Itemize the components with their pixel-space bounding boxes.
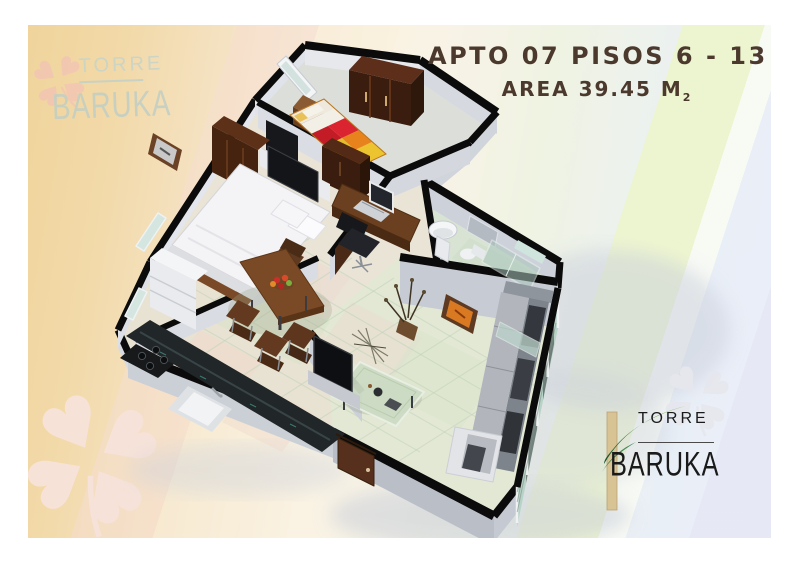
area-text: AREA 39.45 M bbox=[502, 77, 683, 101]
watermark-torre-text: TORRE bbox=[78, 52, 163, 78]
brand-baruka-text: BARUKA bbox=[610, 444, 719, 484]
title-block: APTO 07 PISOS 6 - 13 AREA 39.45 M2 bbox=[428, 42, 766, 104]
brand-logo: ♥♥♥♥ TORRE BARUKA bbox=[598, 398, 783, 523]
brand-torre-text: TORRE bbox=[638, 410, 709, 428]
brochure-page: ♥♥♥♥ TORRE BARUKA ♥♥♥♥ APTO 07 PISOS 6 -… bbox=[0, 0, 800, 565]
area-subscript: 2 bbox=[683, 91, 693, 104]
apartment-area: AREA 39.45 M2 bbox=[428, 77, 766, 104]
watermark-rule bbox=[79, 79, 143, 83]
apartment-title: APTO 07 PISOS 6 - 13 bbox=[428, 42, 766, 70]
watermark-logo: ♥♥♥♥ TORRE BARUKA bbox=[38, 45, 192, 160]
brand-rule bbox=[638, 442, 714, 443]
watermark-baruka-text: BARUKA bbox=[51, 82, 171, 128]
